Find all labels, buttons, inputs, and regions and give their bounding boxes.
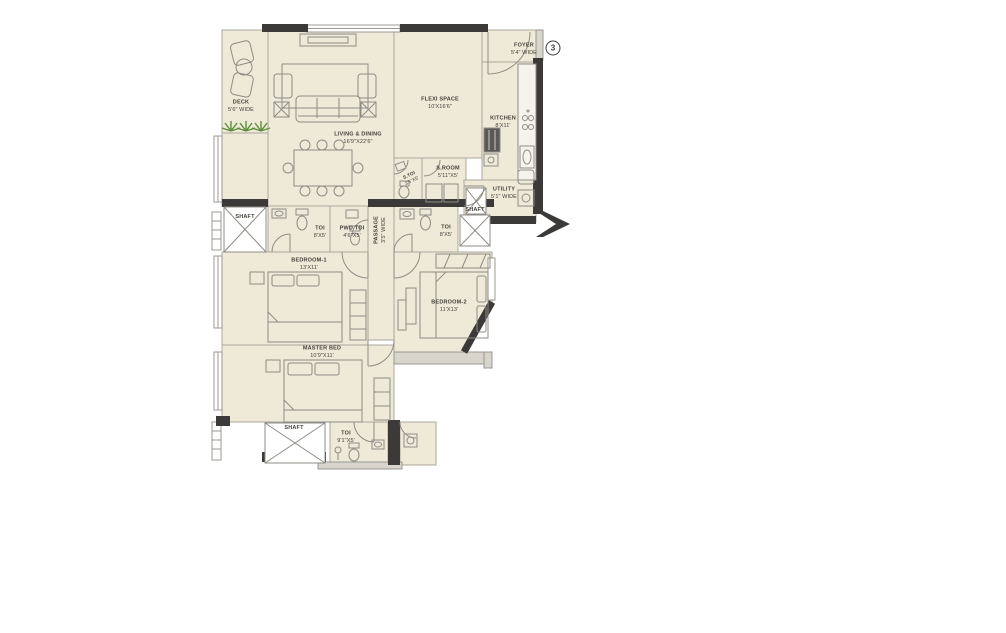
room-name: MASTER BED xyxy=(303,346,341,353)
deck-floor xyxy=(222,30,268,133)
living-dining-floor xyxy=(268,30,394,206)
living-extension-floor xyxy=(222,133,268,206)
room-label-shaft-right: SHAFT xyxy=(465,207,484,214)
room-dim: 10'X16'6" xyxy=(421,104,459,111)
room-dim: 5'1" WIDE xyxy=(491,194,517,201)
room-dim: 9'1"X5' xyxy=(337,438,355,445)
floor-areas xyxy=(222,30,536,465)
room-name: BEDROOM-1 xyxy=(291,258,326,265)
wall-toi-master-pier xyxy=(388,420,400,465)
wall-top-right xyxy=(400,24,488,32)
duct-hatch-lower xyxy=(212,422,221,460)
room-dim: 8'X5' xyxy=(440,232,452,239)
kitchen-counter-icon xyxy=(518,64,536,180)
room-label-pwd-toi: PWD TOI 4'6"X5' xyxy=(340,226,365,240)
flexi-space-floor xyxy=(394,30,482,158)
room-label-utility: UTILITY 5'1" WIDE xyxy=(491,187,517,201)
room-name: TOI xyxy=(314,226,326,233)
room-label-s-room: S.ROOM 5'11"X5' xyxy=(436,166,460,180)
room-name: BEDROOM-2 xyxy=(431,300,466,307)
floor-plan-drawing xyxy=(0,0,1006,633)
room-name: FLEXI SPACE xyxy=(421,97,459,104)
room-dim: 5'4" WIDE xyxy=(511,50,537,57)
room-dim: 3'5" WIDE xyxy=(381,216,388,244)
wall-shaft-left-cap xyxy=(222,199,268,207)
wall-top-left xyxy=(262,24,308,32)
foyer-right-wall xyxy=(536,30,543,60)
room-name: KITCHEN xyxy=(490,116,516,123)
sill-corner-bedroom2 xyxy=(484,352,492,368)
room-dim: 4'6"X5' xyxy=(340,233,365,240)
room-label-flexi-space: FLEXI SPACE 10'X16'6" xyxy=(421,97,459,111)
unit-number-badge: 3 xyxy=(546,41,561,56)
room-label-passage: PASSAGE 3'5" WIDE xyxy=(374,216,388,244)
room-dim: 8'X11' xyxy=(490,123,516,130)
room-name: PASSAGE xyxy=(374,216,381,244)
room-label-bedroom2: BEDROOM-2 11'X13' xyxy=(431,300,466,314)
room-name: SHAFT xyxy=(465,207,484,214)
room-label-toi-master: TOI 9'1"X5' xyxy=(337,431,355,445)
shaft-right-box xyxy=(460,215,490,246)
toi-master-nook-floor xyxy=(400,422,436,465)
room-label-bedroom1: BEDROOM-1 13'X11' xyxy=(291,258,326,272)
room-dim: 5'6" WIDE xyxy=(228,107,254,114)
room-label-kitchen: KITCHEN 8'X11' xyxy=(490,116,516,130)
room-dim: 10'9"X11' xyxy=(303,353,341,360)
room-dim: 8'X5' xyxy=(314,233,326,240)
room-label-shaft-bottom: SHAFT xyxy=(284,425,303,432)
room-dim: 11'X13' xyxy=(431,307,466,314)
room-name: S.ROOM xyxy=(436,166,460,173)
room-name: FOYER xyxy=(511,43,537,50)
room-label-master-bed: MASTER BED 10'9"X11' xyxy=(303,346,341,360)
room-name: PWD TOI xyxy=(340,226,365,233)
room-name: TOI xyxy=(440,225,452,232)
room-label-toi-bedroom1: TOI 8'X5' xyxy=(314,226,326,240)
wall-chevron-corner xyxy=(536,211,570,237)
room-dim: 13'X11' xyxy=(291,265,326,272)
room-name: UTILITY xyxy=(491,187,517,194)
duct-hatch-upper xyxy=(212,212,221,250)
room-dim: 16'9"X22'6" xyxy=(334,139,382,146)
room-name: SHAFT xyxy=(235,214,254,221)
room-name: TOI xyxy=(337,431,355,438)
room-name: DECK xyxy=(228,100,254,107)
room-dim: 5'11"X5' xyxy=(436,173,460,180)
floor-plan-canvas: DECK 5'6" WIDE LIVING & DINING 16'9"X22'… xyxy=(0,0,1006,633)
room-name: SHAFT xyxy=(284,425,303,432)
room-label-foyer: FOYER 5'4" WIDE xyxy=(511,43,537,57)
room-name: LIVING & DINING xyxy=(334,132,382,139)
room-label-toi-bedroom2: TOI 8'X5' xyxy=(440,225,452,239)
room-label-shaft-left: SHAFT xyxy=(235,214,254,221)
sill-below-bedroom2 xyxy=(394,352,492,364)
wall-master-bottom-left xyxy=(216,416,230,426)
room-label-deck: DECK 5'6" WIDE xyxy=(228,100,254,114)
window-right-bedroom2 xyxy=(488,258,495,300)
room-label-living-dining: LIVING & DINING 16'9"X22'6" xyxy=(334,132,382,146)
